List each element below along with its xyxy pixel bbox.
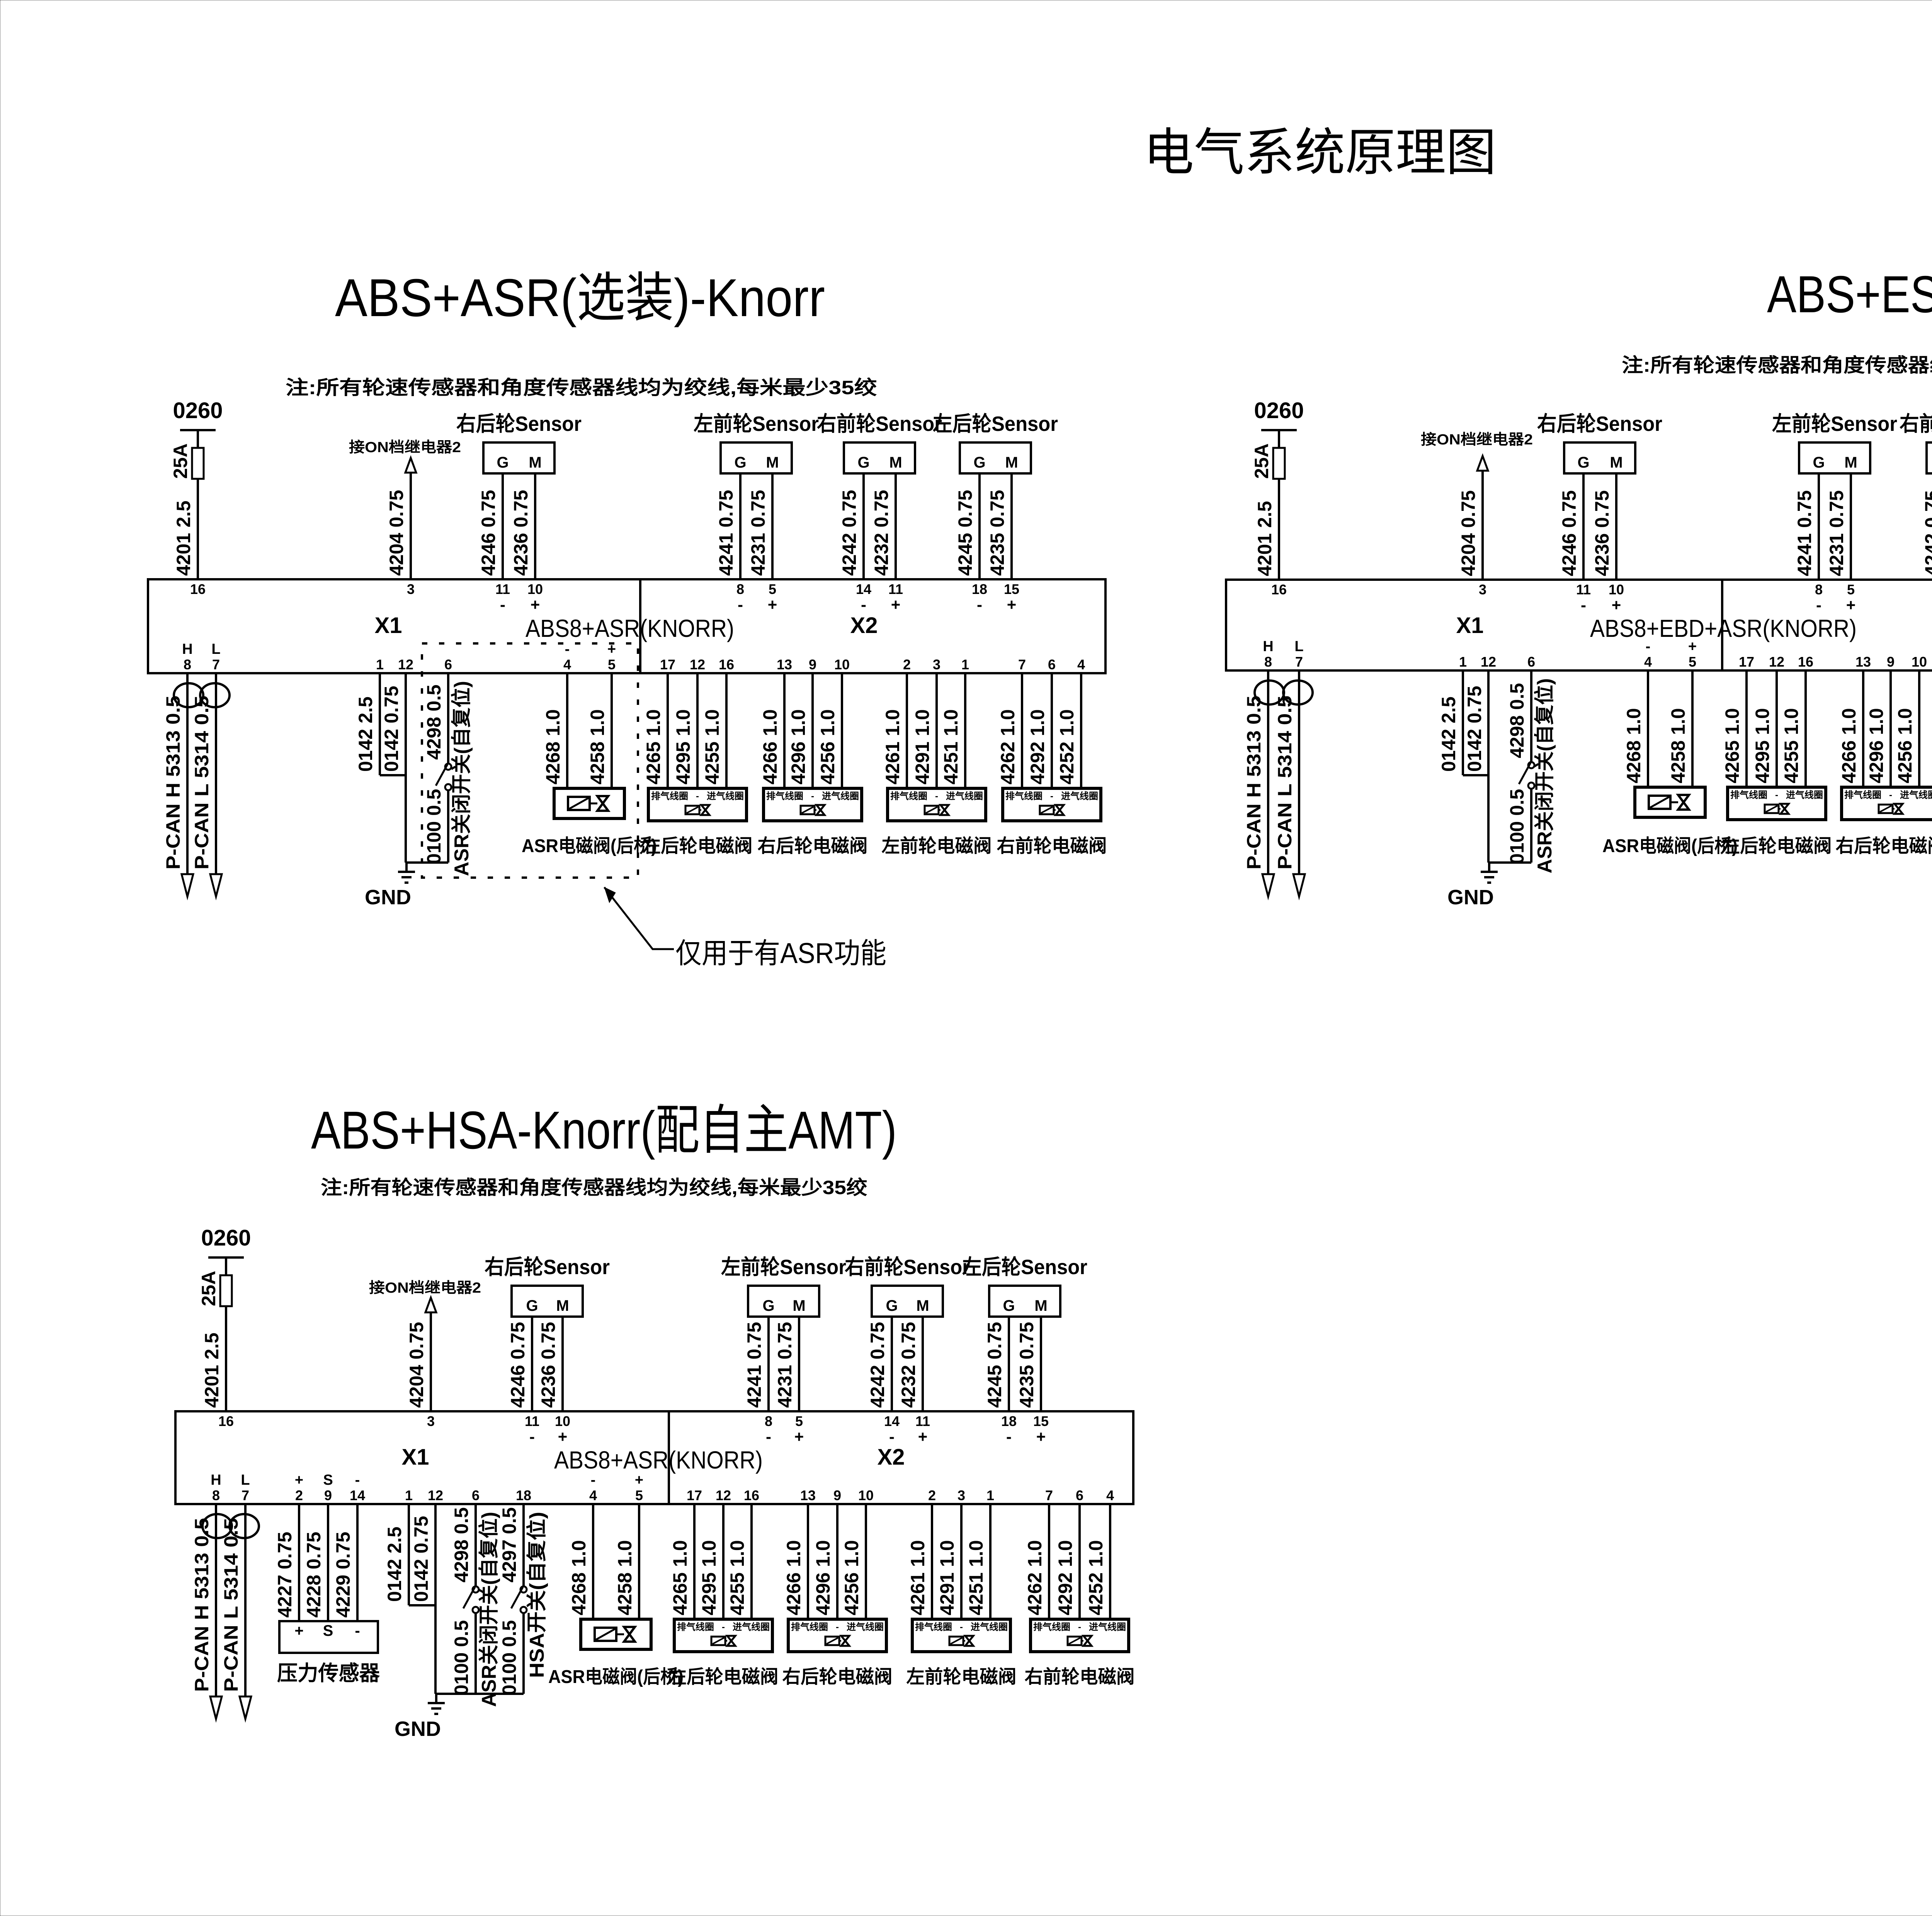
svg-text:25A: 25A [198, 1271, 219, 1306]
svg-text:4236 0.75: 4236 0.75 [537, 1322, 559, 1408]
svg-text:右前轮Sensor: 右前轮Sensor [1900, 412, 1932, 436]
svg-text:仅用于有ASR功能: 仅用于有ASR功能 [675, 937, 886, 969]
svg-text:15: 15 [1033, 1413, 1049, 1429]
svg-text:接ON档继电器2: 接ON档继电器2 [349, 439, 461, 456]
svg-text:-: - [935, 791, 938, 801]
svg-text:2: 2 [903, 657, 911, 672]
svg-text:18: 18 [1001, 1413, 1017, 1429]
svg-text:10: 10 [1912, 654, 1927, 670]
svg-text:4232 0.75: 4232 0.75 [871, 490, 892, 576]
svg-text:12: 12 [1481, 654, 1496, 670]
svg-text:-: - [766, 1428, 771, 1446]
svg-text:5: 5 [795, 1413, 803, 1429]
svg-text:+: + [768, 596, 777, 614]
svg-text:左前轮电磁阀: 左前轮电磁阀 [882, 836, 992, 856]
svg-text:-: - [355, 1622, 360, 1639]
svg-text:25A: 25A [170, 443, 191, 479]
svg-text:17: 17 [1739, 654, 1754, 670]
svg-text:0100 0.5: 0100 0.5 [1506, 789, 1528, 864]
svg-text:4246 0.75: 4246 0.75 [478, 490, 499, 576]
svg-text:G: G [497, 454, 509, 471]
svg-text:G: G [886, 1297, 898, 1314]
svg-text:4298 0.5: 4298 0.5 [451, 1507, 472, 1582]
svg-text:4242 0.75: 4242 0.75 [838, 490, 860, 576]
svg-text:+: + [1007, 596, 1017, 614]
svg-text:8: 8 [1264, 654, 1272, 670]
svg-text:左后轮电磁阀: 左后轮电磁阀 [668, 1667, 779, 1687]
svg-text:4292 1.0: 4292 1.0 [1027, 709, 1048, 784]
svg-text:G: G [1577, 454, 1589, 471]
svg-text:左前轮电磁阀: 左前轮电磁阀 [906, 1667, 1017, 1687]
svg-text:P-CAN L 5314 0.5: P-CAN L 5314 0.5 [191, 696, 213, 870]
svg-text:接ON档继电器2: 接ON档继电器2 [1421, 432, 1533, 448]
svg-text:H: H [1263, 638, 1273, 655]
svg-text:排气线圈: 排气线圈 [766, 791, 803, 801]
svg-text:压力传感器: 压力传感器 [277, 1662, 380, 1685]
svg-text:0142 0.75: 0142 0.75 [1464, 686, 1485, 772]
svg-text:4241 0.75: 4241 0.75 [1794, 490, 1815, 576]
svg-text:右后轮Sensor: 右后轮Sensor [1537, 412, 1662, 436]
svg-text:G: G [734, 454, 746, 471]
svg-text:-: - [1078, 1622, 1081, 1632]
svg-text:排气线圈: 排气线圈 [915, 1622, 952, 1632]
svg-text:-: - [696, 791, 699, 801]
svg-text:4231 0.75: 4231 0.75 [774, 1322, 796, 1408]
svg-text:右前轮Sensor: 右前轮Sensor [817, 412, 942, 436]
svg-text:排气线圈: 排气线圈 [791, 1622, 828, 1632]
svg-text:4235 0.75: 4235 0.75 [1016, 1322, 1037, 1408]
svg-text:13: 13 [800, 1487, 816, 1503]
svg-text:4252 1.0: 4252 1.0 [1056, 709, 1078, 784]
svg-text:G: G [526, 1297, 538, 1314]
svg-text:H: H [211, 1472, 221, 1488]
svg-text:4: 4 [1106, 1487, 1114, 1503]
svg-text:4255 1.0: 4255 1.0 [701, 709, 723, 784]
svg-text:4258 1.0: 4258 1.0 [587, 709, 608, 784]
svg-text:进气线圈: 进气线圈 [847, 1622, 884, 1632]
svg-text:进气线圈: 进气线圈 [1089, 1622, 1126, 1632]
svg-text:16: 16 [1271, 582, 1287, 597]
svg-text:4258 1.0: 4258 1.0 [614, 1540, 636, 1615]
svg-text:进气线圈: 进气线圈 [822, 791, 859, 801]
svg-text:11: 11 [915, 1413, 930, 1429]
svg-text:-: - [861, 596, 866, 614]
svg-text:左后轮Sensor: 左后轮Sensor [962, 1256, 1087, 1279]
svg-text:-: - [722, 1622, 725, 1632]
svg-text:G: G [1003, 1297, 1015, 1314]
svg-text:4261 1.0: 4261 1.0 [907, 1540, 929, 1615]
svg-text:9: 9 [324, 1487, 332, 1503]
svg-text:14: 14 [856, 581, 871, 597]
svg-text:12: 12 [716, 1487, 731, 1503]
svg-text:-: - [738, 596, 743, 614]
svg-text:3: 3 [1479, 582, 1486, 597]
svg-text:4265 1.0: 4265 1.0 [643, 709, 664, 784]
svg-text:M: M [889, 454, 902, 471]
svg-text:-: - [1816, 596, 1821, 614]
svg-text:L: L [211, 641, 220, 657]
svg-text:10: 10 [834, 657, 850, 672]
svg-text:4246 0.75: 4246 0.75 [507, 1322, 529, 1408]
svg-text:4201 2.5: 4201 2.5 [201, 1332, 223, 1408]
svg-text:X1: X1 [402, 1445, 429, 1470]
svg-text:0260: 0260 [173, 398, 223, 423]
svg-text:-: - [889, 1428, 895, 1446]
svg-text:4295 1.0: 4295 1.0 [672, 709, 694, 784]
svg-text:右前轮Sensor: 右前轮Sensor [845, 1256, 970, 1279]
svg-text:-: - [1775, 790, 1778, 800]
svg-text:进气线圈: 进气线圈 [1061, 791, 1098, 801]
svg-text:4258 1.0: 4258 1.0 [1667, 708, 1689, 783]
svg-text:16: 16 [719, 657, 734, 672]
svg-text:ABS+ASR(选装)-Knorr: ABS+ASR(选装)-Knorr [335, 268, 825, 328]
svg-text:HSA开关(自复位): HSA开关(自复位) [526, 1512, 548, 1678]
svg-text:4204 0.75: 4204 0.75 [406, 1322, 427, 1408]
svg-text:11: 11 [888, 581, 903, 597]
svg-text:3: 3 [427, 1413, 435, 1429]
svg-text:6: 6 [1527, 654, 1535, 670]
svg-text:7: 7 [1295, 654, 1303, 670]
svg-text:4255 1.0: 4255 1.0 [726, 1540, 748, 1615]
svg-text:M: M [766, 454, 779, 471]
svg-text:4297 0.5: 4297 0.5 [498, 1507, 520, 1582]
svg-text:ASR电磁阀(后桥): ASR电磁阀(后桥) [522, 836, 657, 856]
svg-text:4298 0.5: 4298 0.5 [1506, 683, 1528, 758]
svg-text:10: 10 [858, 1487, 874, 1503]
svg-text:左前轮Sensor: 左前轮Sensor [1772, 412, 1897, 436]
svg-text:P-CAN H 5313 0.5: P-CAN H 5313 0.5 [1243, 696, 1265, 870]
svg-text:4266 1.0: 4266 1.0 [783, 1540, 804, 1615]
svg-text:-: - [565, 641, 570, 657]
svg-text:4262 1.0: 4262 1.0 [1024, 1540, 1046, 1615]
svg-text:ABS8+EBD+ASR(KNORR): ABS8+EBD+ASR(KNORR) [1590, 614, 1857, 642]
svg-text:右后轮Sensor: 右后轮Sensor [456, 412, 582, 436]
svg-text:ABS+ESC-Knorr: ABS+ESC-Knorr [1767, 265, 1932, 323]
svg-text:+: + [918, 1428, 928, 1446]
svg-text:4246 0.75: 4246 0.75 [1558, 490, 1580, 576]
svg-text:4266 1.0: 4266 1.0 [1838, 708, 1860, 783]
svg-text:0100 0.5: 0100 0.5 [451, 1620, 472, 1695]
svg-text:4265 1.0: 4265 1.0 [669, 1540, 691, 1615]
svg-text:P-CAN L 5314 0.5: P-CAN L 5314 0.5 [1274, 696, 1296, 870]
svg-text:5: 5 [1847, 582, 1855, 597]
svg-text:4241 0.75: 4241 0.75 [743, 1322, 765, 1408]
svg-text:4227 0.75: 4227 0.75 [274, 1532, 296, 1618]
svg-text:右前轮电磁阀: 右前轮电磁阀 [997, 836, 1107, 856]
svg-text:4268 1.0: 4268 1.0 [1623, 708, 1645, 783]
svg-text:M: M [529, 454, 541, 471]
svg-text:7: 7 [1045, 1487, 1053, 1503]
svg-text:M: M [1034, 1297, 1047, 1314]
svg-text:12: 12 [690, 657, 705, 672]
svg-text:0100 0.5: 0100 0.5 [423, 789, 445, 864]
svg-text:GND: GND [365, 886, 411, 909]
svg-text:ASR电磁阀(后桥): ASR电磁阀(后桥) [548, 1667, 684, 1687]
svg-text:16: 16 [218, 1413, 234, 1429]
svg-text:M: M [1844, 454, 1857, 471]
svg-text:18: 18 [516, 1487, 531, 1503]
svg-text:4228 0.75: 4228 0.75 [303, 1532, 325, 1618]
svg-text:4256 1.0: 4256 1.0 [841, 1540, 862, 1615]
svg-text:10: 10 [555, 1413, 570, 1429]
svg-text:4204 0.75: 4204 0.75 [386, 490, 407, 576]
svg-text:ABS+HSA-Knorr(配自主AMT): ABS+HSA-Knorr(配自主AMT) [311, 1101, 897, 1160]
svg-text:GND: GND [395, 1717, 441, 1741]
svg-text:7: 7 [241, 1487, 249, 1503]
svg-text:进气线圈: 进气线圈 [733, 1622, 770, 1632]
svg-text:+: + [1846, 596, 1856, 614]
svg-text:12: 12 [398, 657, 413, 672]
svg-text:M: M [793, 1297, 805, 1314]
svg-text:X2: X2 [850, 613, 878, 638]
svg-text:8: 8 [212, 1487, 220, 1503]
svg-text:4201 2.5: 4201 2.5 [173, 500, 194, 576]
svg-text:4291 1.0: 4291 1.0 [912, 709, 933, 784]
svg-text:排气线圈: 排气线圈 [677, 1622, 714, 1632]
svg-text:16: 16 [1798, 654, 1813, 670]
svg-text:5: 5 [608, 657, 616, 672]
svg-text:4292 1.0: 4292 1.0 [1054, 1540, 1076, 1615]
svg-text:+: + [1688, 638, 1697, 655]
svg-text:ASR电磁阀(后桥): ASR电磁阀(后桥) [1602, 836, 1738, 856]
svg-text:G: G [973, 454, 985, 471]
svg-text:-: - [811, 791, 814, 801]
svg-text:P-CAN H 5313 0.5: P-CAN H 5313 0.5 [162, 696, 184, 870]
svg-text:4: 4 [589, 1487, 597, 1503]
svg-text:4: 4 [1077, 657, 1085, 672]
svg-text:M: M [1005, 454, 1018, 471]
svg-text:4231 0.75: 4231 0.75 [1826, 490, 1847, 576]
svg-text:注:所有轮速传感器和角度传感器线均为绞线,每米最少35绞: 注:所有轮速传感器和角度传感器线均为绞线,每米最少35绞 [286, 377, 877, 398]
svg-text:1: 1 [376, 657, 384, 672]
svg-text:+: + [295, 1472, 303, 1488]
svg-text:8: 8 [184, 657, 191, 672]
svg-text:GND: GND [1447, 886, 1494, 909]
svg-text:8: 8 [736, 581, 744, 597]
svg-text:6: 6 [444, 657, 452, 672]
svg-text:11: 11 [495, 581, 510, 597]
svg-text:-: - [591, 1472, 596, 1488]
svg-text:进气线圈: 进气线圈 [1786, 790, 1823, 800]
svg-text:5: 5 [1689, 654, 1696, 670]
svg-text:0260: 0260 [1254, 398, 1304, 423]
svg-text:G: G [1813, 454, 1825, 471]
svg-text:16: 16 [744, 1487, 759, 1503]
svg-text:G: G [762, 1297, 774, 1314]
svg-text:6: 6 [1048, 657, 1056, 672]
svg-text:8: 8 [765, 1413, 772, 1429]
svg-text:4204 0.75: 4204 0.75 [1458, 490, 1479, 576]
svg-text:4291 1.0: 4291 1.0 [936, 1540, 958, 1615]
svg-text:0142 0.75: 0142 0.75 [381, 686, 402, 772]
svg-text:-: - [1646, 638, 1651, 655]
svg-text:12: 12 [1769, 654, 1784, 670]
svg-text:H: H [182, 641, 192, 657]
svg-text:M: M [916, 1297, 929, 1314]
svg-text:-: - [1581, 596, 1586, 614]
svg-text:右前轮电磁阀: 右前轮电磁阀 [1025, 1667, 1135, 1687]
svg-text:右后轮电磁阀: 右后轮电磁阀 [1836, 836, 1932, 856]
svg-text:2: 2 [928, 1487, 936, 1503]
svg-text:12: 12 [428, 1487, 443, 1503]
svg-text:右后轮Sensor: 右后轮Sensor [485, 1256, 610, 1279]
svg-text:排气线圈: 排气线圈 [651, 791, 688, 801]
svg-text:排气线圈: 排气线圈 [1033, 1622, 1070, 1632]
svg-text:M: M [1610, 454, 1622, 471]
svg-text:接ON档继电器2: 接ON档继电器2 [369, 1280, 481, 1296]
svg-text:3: 3 [407, 581, 415, 597]
svg-text:+: + [531, 596, 540, 614]
svg-text:+: + [1612, 596, 1621, 614]
svg-text:注:所有轮速传感器和角度传感器线均为绞线,每米最少35绞: 注:所有轮速传感器和角度传感器线均为绞线,每米最少35绞 [321, 1177, 867, 1198]
svg-text:左后轮电磁阀: 左后轮电磁阀 [1722, 836, 1832, 856]
svg-text:S: S [323, 1472, 333, 1488]
svg-text:9: 9 [809, 657, 816, 672]
svg-text:左前轮Sensor: 左前轮Sensor [721, 1256, 846, 1279]
svg-text:9: 9 [1887, 654, 1895, 670]
svg-text:+: + [794, 1428, 804, 1446]
svg-text:-: - [1889, 790, 1892, 800]
svg-text:ASR关闭开关(自复位): ASR关闭开关(自复位) [478, 1512, 500, 1707]
svg-text:-: - [1006, 1428, 1012, 1446]
svg-text:+: + [294, 1622, 303, 1639]
svg-text:0142 2.5: 0142 2.5 [355, 696, 376, 772]
svg-text:排气线圈: 排气线圈 [1005, 791, 1043, 801]
svg-text:+: + [1036, 1428, 1046, 1446]
svg-text:1: 1 [1459, 654, 1467, 670]
svg-text:25A: 25A [1251, 443, 1272, 479]
svg-text:G: G [857, 454, 869, 471]
svg-text:-: - [1050, 791, 1053, 801]
svg-text:7: 7 [212, 657, 220, 672]
svg-text:进气线圈: 进气线圈 [971, 1622, 1008, 1632]
svg-text:4252 1.0: 4252 1.0 [1085, 1540, 1107, 1615]
svg-text:ASR关闭开关(自复位): ASR关闭开关(自复位) [451, 681, 473, 876]
svg-text:1: 1 [961, 657, 969, 672]
svg-text:9: 9 [833, 1487, 841, 1503]
svg-text:ABS8+ASR(KNORR): ABS8+ASR(KNORR) [526, 614, 734, 642]
svg-text:4298 0.5: 4298 0.5 [423, 684, 445, 760]
svg-text:17: 17 [660, 657, 675, 672]
svg-text:4295 1.0: 4295 1.0 [1752, 708, 1773, 783]
svg-text:X1: X1 [1456, 613, 1484, 638]
svg-text:4268 1.0: 4268 1.0 [542, 709, 564, 784]
svg-text:4201 2.5: 4201 2.5 [1254, 501, 1276, 576]
svg-text:进气线圈: 进气线圈 [1900, 790, 1932, 800]
svg-text:15: 15 [1004, 581, 1019, 597]
svg-text:4261 1.0: 4261 1.0 [882, 709, 903, 784]
svg-text:18: 18 [972, 581, 987, 597]
svg-text:4295 1.0: 4295 1.0 [698, 1540, 720, 1615]
svg-text:M: M [556, 1297, 569, 1314]
svg-text:4245 0.75: 4245 0.75 [954, 490, 976, 576]
svg-text:14: 14 [884, 1413, 900, 1429]
svg-text:4296 1.0: 4296 1.0 [812, 1540, 834, 1615]
svg-text:左前轮Sensor: 左前轮Sensor [694, 412, 819, 436]
svg-text:8: 8 [1815, 582, 1823, 597]
svg-text:5: 5 [635, 1487, 643, 1503]
svg-text:4241 0.75: 4241 0.75 [715, 490, 737, 576]
svg-text:4231 0.75: 4231 0.75 [747, 490, 769, 576]
svg-text:4229 0.75: 4229 0.75 [332, 1532, 354, 1618]
svg-text:4265 1.0: 4265 1.0 [1721, 708, 1743, 783]
svg-text:X1: X1 [375, 613, 402, 638]
svg-text:1: 1 [986, 1487, 994, 1503]
svg-text:左后轮电磁阀: 左后轮电磁阀 [643, 836, 753, 856]
svg-text:+: + [635, 1472, 643, 1488]
svg-text:4296 1.0: 4296 1.0 [1866, 708, 1887, 783]
svg-text:P-CAN H 5313 0.5: P-CAN H 5313 0.5 [191, 1518, 213, 1692]
svg-text:L: L [1294, 638, 1303, 655]
svg-text:4242 0.75: 4242 0.75 [1921, 490, 1932, 576]
svg-text:4256 1.0: 4256 1.0 [817, 709, 838, 784]
svg-text:注:所有轮速传感器和角度传感器线均为绞线,每米最少35绞: 注:所有轮速传感器和角度传感器线均为绞线,每米最少35绞 [1622, 354, 1932, 376]
svg-text:4: 4 [1644, 654, 1652, 670]
svg-text:4235 0.75: 4235 0.75 [986, 490, 1008, 576]
svg-text:+: + [891, 596, 901, 614]
svg-text:4262 1.0: 4262 1.0 [997, 709, 1019, 784]
svg-text:10: 10 [527, 581, 543, 597]
svg-text:4232 0.75: 4232 0.75 [898, 1322, 919, 1408]
svg-text:17: 17 [687, 1487, 702, 1503]
svg-text:2: 2 [295, 1487, 303, 1503]
svg-text:左后轮Sensor: 左后轮Sensor [933, 412, 1058, 436]
svg-text:13: 13 [777, 657, 792, 672]
svg-text:4242 0.75: 4242 0.75 [867, 1322, 888, 1408]
svg-text:-: - [836, 1622, 839, 1632]
svg-text:0142 2.5: 0142 2.5 [1438, 696, 1459, 772]
svg-text:4296 1.0: 4296 1.0 [787, 709, 809, 784]
svg-text:5: 5 [769, 581, 776, 597]
svg-text:13: 13 [1855, 654, 1871, 670]
svg-text:6: 6 [1076, 1487, 1083, 1503]
svg-text:0260: 0260 [201, 1225, 251, 1251]
svg-text:X2: X2 [878, 1445, 905, 1470]
svg-text:3: 3 [933, 657, 940, 672]
svg-text:3: 3 [957, 1487, 965, 1503]
svg-text:4236 0.75: 4236 0.75 [1591, 490, 1613, 576]
svg-text:-: - [355, 1472, 360, 1488]
svg-text:1: 1 [405, 1487, 413, 1503]
svg-text:4251 1.0: 4251 1.0 [965, 1540, 987, 1615]
svg-text:电气系统原理图: 电气系统原理图 [1144, 124, 1497, 181]
svg-text:-: - [529, 1428, 535, 1446]
svg-text:P-CAN L 5314 0.5: P-CAN L 5314 0.5 [220, 1518, 242, 1692]
svg-text:进气线圈: 进气线圈 [946, 791, 983, 801]
svg-text:-: - [977, 596, 982, 614]
svg-text:ASR关闭开关(自复位): ASR关闭开关(自复位) [1534, 678, 1556, 873]
svg-text:6: 6 [472, 1487, 480, 1503]
svg-text:0142 2.5: 0142 2.5 [384, 1526, 405, 1602]
svg-text:+: + [558, 1428, 568, 1446]
svg-text:排气线圈: 排气线圈 [1844, 790, 1881, 800]
svg-text:4236 0.75: 4236 0.75 [510, 490, 532, 576]
svg-text:16: 16 [190, 581, 206, 597]
svg-text:右后轮电磁阀: 右后轮电磁阀 [758, 836, 868, 856]
svg-text:0100 0.5: 0100 0.5 [498, 1620, 520, 1695]
svg-text:右后轮电磁阀: 右后轮电磁阀 [782, 1667, 893, 1687]
svg-text:-: - [960, 1622, 963, 1632]
svg-text:ABS8+ASR(KNORR): ABS8+ASR(KNORR) [554, 1446, 763, 1474]
svg-text:11: 11 [525, 1413, 539, 1429]
svg-text:S: S [323, 1622, 333, 1639]
svg-text:4245 0.75: 4245 0.75 [984, 1322, 1005, 1408]
svg-text:排气线圈: 排气线圈 [1730, 790, 1767, 800]
svg-text:4: 4 [563, 657, 571, 672]
svg-text:进气线圈: 进气线圈 [707, 791, 744, 801]
svg-text:10: 10 [1609, 582, 1624, 597]
svg-text:4255 1.0: 4255 1.0 [1781, 708, 1802, 783]
